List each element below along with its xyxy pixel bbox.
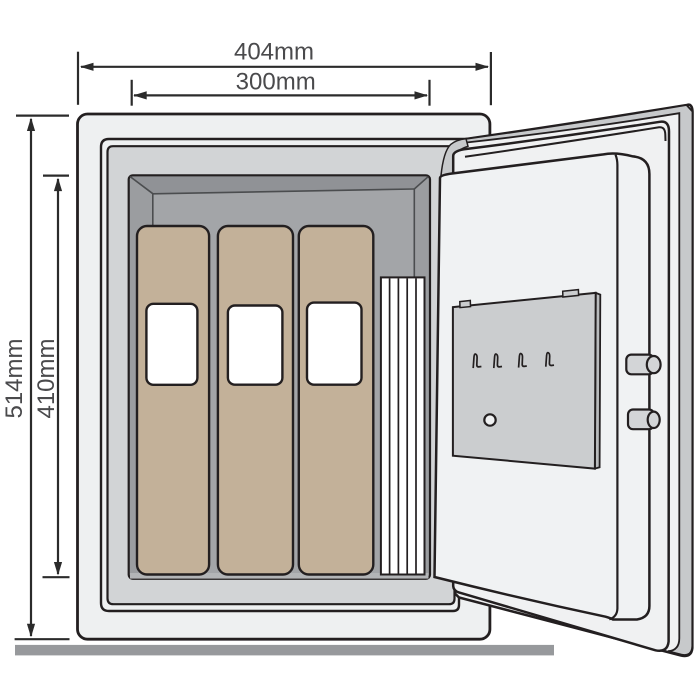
svg-text:404mm: 404mm — [234, 39, 314, 66]
svg-text:410mm: 410mm — [33, 338, 60, 418]
svg-text:514mm: 514mm — [1, 338, 28, 418]
svg-text:300mm: 300mm — [236, 69, 316, 96]
